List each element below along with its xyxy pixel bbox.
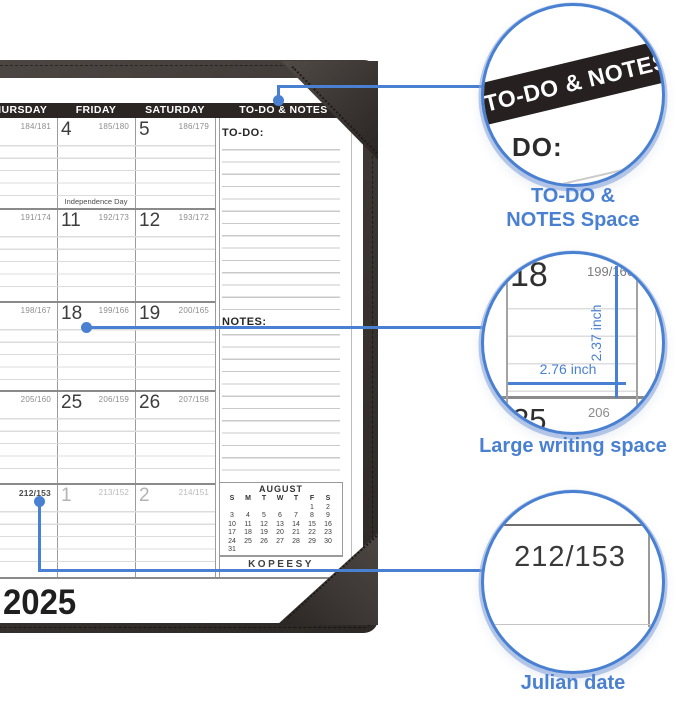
julian-date: 193/172 — [179, 213, 209, 222]
mini-calendar-day — [256, 504, 272, 513]
julian-date: 205/160 — [21, 395, 51, 404]
callout-line — [38, 499, 41, 572]
year-title: 2025 — [3, 583, 76, 623]
day-number: 4 — [61, 119, 72, 141]
mini-calendar-day — [288, 504, 304, 513]
cell-border-fragment — [648, 524, 650, 627]
cell-border-fragment — [655, 254, 656, 435]
vertical-measure-line — [615, 266, 618, 398]
julian-date: 207/158 — [179, 395, 209, 404]
day-cell: 184/181 — [0, 118, 57, 206]
zoomed-julian-date: 212/153 — [484, 541, 656, 574]
julian-date: 213/152 — [99, 488, 129, 497]
todo-ruled-lines — [222, 138, 340, 310]
grid-vline — [219, 118, 220, 577]
caption-large-writing-space: Large writing space — [443, 434, 679, 458]
day-number: 18 — [61, 303, 82, 325]
mini-calendar-weekday: F — [304, 495, 320, 504]
mini-calendar-day: 25 — [240, 538, 256, 547]
mini-calendar-day: 2 — [320, 504, 336, 513]
zoomed-next-day-number: 25 — [512, 402, 546, 435]
mini-calendar-day: 9 — [320, 512, 336, 521]
mini-calendar-day: 27 — [272, 538, 288, 547]
mini-calendar-day: 10 — [224, 521, 240, 530]
mini-calendar-day: 30 — [320, 538, 336, 547]
julian-date: 186/179 — [179, 122, 209, 131]
caption-todo-notes-space: TO-DO & NOTES Space — [463, 184, 679, 232]
day-cell: 12 193/172 — [135, 209, 215, 297]
day-number: 2 — [139, 485, 150, 507]
julian-date: 198/167 — [21, 306, 51, 315]
julian-date: 184/181 — [21, 122, 51, 131]
mini-calendar-title: AUGUST — [219, 484, 343, 494]
mini-calendar-day — [224, 504, 240, 513]
mini-calendar-day: 6 — [272, 512, 288, 521]
mini-calendar-day — [256, 546, 272, 555]
day-cell: 205/160 — [0, 391, 57, 479]
mini-calendar-weekday: T — [256, 495, 272, 504]
mini-calendar-bottom-border — [219, 555, 343, 557]
notes-ruled-lines — [222, 323, 340, 478]
magnifier-circle-julian-date: 212/153 — [481, 490, 665, 674]
day-number: 19 — [139, 303, 160, 325]
day-number: 1 — [61, 485, 72, 507]
cell-border-fragment — [636, 254, 638, 435]
magnifier-circle-writing-space: 18 199/166 25 206 2.37 inch 2.76 inch — [481, 251, 665, 435]
mini-calendar-day: 29 — [304, 538, 320, 547]
mini-calendar-top-border — [219, 482, 343, 483]
mini-calendar-day: 7 — [288, 512, 304, 521]
todo-notes-banner: TO-DO & NOTES — [481, 36, 665, 128]
row-border-fragment — [492, 524, 665, 526]
day-number: 5 — [139, 119, 150, 141]
product-feature-image: THURSDAY FRIDAY SATURDAY TO-DO & NOTES 1… — [0, 0, 679, 702]
julian-date: 206/159 — [99, 395, 129, 404]
mini-calendar-day: 31 — [224, 546, 240, 555]
julian-date: 192/173 — [99, 213, 129, 222]
day-cell: 11 192/173 — [57, 209, 135, 297]
day-cell: 5 186/179 — [135, 118, 215, 206]
grid-vline — [351, 118, 352, 577]
mini-calendar-day: 5 — [256, 512, 272, 521]
cell-border-fragment — [506, 254, 508, 435]
magnifier-circle-todo-notes: TO-DO & NOTES DO: — [481, 3, 665, 187]
zoomed-julian-date: 199/166 — [542, 264, 634, 279]
header-saturday: SATURDAY — [135, 103, 215, 118]
mini-calendar-day: 18 — [240, 529, 256, 538]
mini-calendar-day: 16 — [320, 521, 336, 530]
day-cell: 198/167 — [0, 302, 57, 390]
mini-calendar-day: 24 — [224, 538, 240, 547]
mini-calendar-day — [288, 546, 304, 555]
mini-calendar-day: 15 — [304, 521, 320, 530]
mini-calendar-day: 19 — [256, 529, 272, 538]
horizontal-measure-label: 2.76 inch — [522, 361, 614, 377]
mini-calendar-day: 21 — [288, 529, 304, 538]
callout-line — [85, 326, 489, 329]
ruled-line-fragment — [494, 624, 665, 625]
mini-calendar-day: 13 — [272, 521, 288, 530]
mini-calendar-day — [240, 546, 256, 555]
mini-calendar-weekday: M — [240, 495, 256, 504]
mini-calendar-day: 23 — [320, 529, 336, 538]
day-number: 12 — [139, 210, 160, 232]
header-friday: FRIDAY — [57, 103, 135, 118]
day-cell: 191/174 — [0, 209, 57, 297]
julian-date: 200/165 — [179, 306, 209, 315]
row-border-fragment — [484, 396, 665, 399]
callout-line — [277, 85, 489, 88]
day-cell: 19 200/165 — [135, 302, 215, 390]
caption-line: TO-DO & — [463, 184, 679, 208]
grid-bottom-border — [0, 577, 352, 579]
ruled-line-fragment — [537, 159, 664, 187]
mini-calendar-day: 8 — [304, 512, 320, 521]
day-cell: 26 207/158 — [135, 391, 215, 479]
mini-calendar-day — [272, 546, 288, 555]
mini-calendar-day: 4 — [240, 512, 256, 521]
mini-calendar-day: 1 — [304, 504, 320, 513]
julian-date: 214/151 — [179, 488, 209, 497]
day-cell: 4 185/180 — [57, 118, 135, 206]
mini-calendar-day: 20 — [272, 529, 288, 538]
mini-calendar-day: 17 — [224, 529, 240, 538]
julian-date: 199/166 — [99, 306, 129, 315]
day-cell: 25 206/159 — [57, 391, 135, 479]
day-number: 25 — [61, 392, 82, 414]
day-cell-highlight: 212/153 — [0, 484, 57, 572]
callout-line — [38, 569, 489, 572]
mini-calendar-day: 3 — [224, 512, 240, 521]
mini-calendar-day: 14 — [288, 521, 304, 530]
julian-date: 191/174 — [21, 213, 51, 222]
julian-date: 185/180 — [99, 122, 129, 131]
mini-calendar-day: 28 — [288, 538, 304, 547]
header-thursday: THURSDAY — [0, 103, 57, 118]
caption-julian-date: Julian date — [463, 671, 679, 695]
mini-calendar-day — [320, 546, 336, 555]
caption-line: NOTES Space — [463, 208, 679, 232]
day-number: 26 — [139, 392, 160, 414]
mini-calendar-weekday: W — [272, 495, 288, 504]
day-cell: 1 213/152 — [57, 484, 135, 572]
mini-calendar-day — [304, 546, 320, 555]
mini-calendar-day: 26 — [256, 538, 272, 547]
todo-partial-text: DO: — [512, 132, 563, 163]
mini-calendar-weekday: S — [224, 495, 240, 504]
mini-calendar-day — [272, 504, 288, 513]
holiday-label: Independence Day — [57, 197, 135, 206]
horizontal-measure-line — [507, 382, 626, 385]
mini-calendar-grid: SMTWTFS123456789101112131415161718192021… — [224, 495, 336, 555]
grid-vline — [215, 118, 216, 577]
mini-calendar-day: 22 — [304, 529, 320, 538]
zoomed-next-julian: 206 — [588, 405, 610, 420]
day-cell: 18 199/166 — [57, 302, 135, 390]
mini-calendar-day — [240, 504, 256, 513]
mini-calendar-day: 11 — [240, 521, 256, 530]
mini-calendar-weekday: T — [288, 495, 304, 504]
day-number: 11 — [61, 210, 81, 232]
mini-calendar-weekday: S — [320, 495, 336, 504]
weekday-header-band: THURSDAY FRIDAY SATURDAY TO-DO & NOTES — [0, 103, 363, 118]
calendar-sheet: THURSDAY FRIDAY SATURDAY TO-DO & NOTES 1… — [0, 78, 363, 623]
mini-calendar-day: 12 — [256, 521, 272, 530]
day-cell: 2 214/151 — [135, 484, 215, 572]
